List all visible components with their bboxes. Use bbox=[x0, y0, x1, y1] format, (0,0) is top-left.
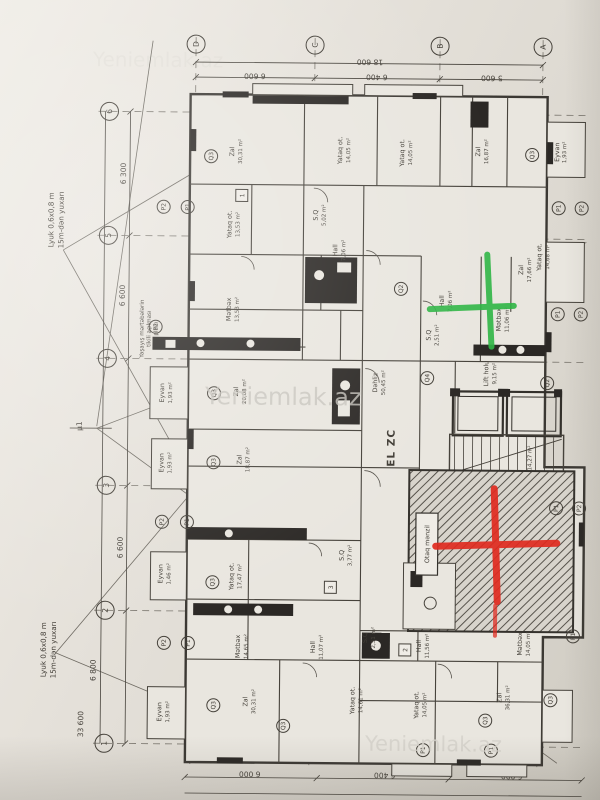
room-label: Zal bbox=[518, 265, 525, 275]
room-label: Yataq ot. bbox=[399, 139, 406, 168]
watermark-center: Yeniemlak.az bbox=[204, 382, 362, 411]
room-label: Eyvan bbox=[159, 383, 166, 402]
room-label: Zal bbox=[496, 693, 503, 703]
lyuk-line2: 15m-dən yuxarı bbox=[49, 621, 58, 678]
note-line2: tikili açılması bbox=[146, 310, 152, 347]
room-label: Yataq ot. bbox=[337, 137, 344, 166]
marker-p2: P2 bbox=[578, 311, 585, 319]
room-area: 7,06 m² bbox=[340, 240, 347, 262]
marker-p1: P1 bbox=[185, 639, 192, 647]
room-area: 13,53 m² bbox=[234, 297, 241, 322]
room-label: Eyvan bbox=[554, 143, 561, 162]
room-area: 11,56 m² bbox=[424, 634, 431, 659]
room-area: 14,65 m² bbox=[243, 634, 250, 659]
room-area: 14,05 m² bbox=[345, 138, 352, 163]
grid-number-1: 1 bbox=[99, 741, 108, 746]
room-label: Yataq ot. bbox=[536, 243, 543, 272]
lyuk-annotation-top: Lyuk 0,6x0,8 m 15m-dən yuxarı bbox=[46, 191, 65, 248]
tag-1: 1 bbox=[239, 193, 246, 197]
dim-left-1: 6 300 bbox=[119, 162, 128, 184]
room-label: Eyvan bbox=[157, 564, 164, 583]
room-label: S.Q bbox=[426, 330, 433, 341]
grid-number-6: 6 bbox=[105, 109, 114, 114]
room-area: 14,05 m² bbox=[421, 693, 428, 718]
marker-p2: P2 bbox=[576, 505, 583, 513]
section-mark-mu1: µ1 bbox=[75, 421, 84, 431]
marker-q3: Q3 bbox=[280, 721, 287, 730]
room-area: 14,68 m² bbox=[544, 245, 551, 270]
room-label: Mətbəx bbox=[226, 297, 233, 321]
note-annotation: Yaşayış mərtəbələrin tikili açılması pla… bbox=[139, 299, 160, 359]
lyuk-annotation-bottom: Lyuk 0,6x0,8 m 15m-dən yuxarı bbox=[39, 621, 58, 678]
room-label: Hall bbox=[332, 244, 339, 256]
marker-q3: Q3 bbox=[208, 152, 215, 161]
note-line3: planı bbox=[154, 321, 160, 335]
room-area: 1,93 m² bbox=[561, 141, 568, 163]
dim-top-seg1: 6 600 bbox=[244, 71, 266, 80]
otaq-menzil-label: Otaq mənzil bbox=[424, 525, 431, 563]
grid-number-5: 5 bbox=[104, 233, 113, 238]
grid-number-3: 3 bbox=[102, 483, 111, 488]
room-label: Mətbəx bbox=[517, 632, 524, 656]
room-label: Yataq ot. bbox=[413, 691, 420, 720]
room-label: Hall bbox=[310, 641, 317, 653]
marker-q3: Q3 bbox=[547, 696, 554, 705]
room-label: Eyvan bbox=[158, 453, 165, 472]
room-label: Zal bbox=[475, 146, 482, 156]
lyuk-line2: 15m-dən yuxarı bbox=[56, 191, 65, 248]
dim-left-3: 6 600 bbox=[116, 536, 125, 558]
room-area: 1,93 m² bbox=[167, 382, 174, 404]
marker-q3: Q3 bbox=[210, 458, 217, 467]
room-area: 16,87 m² bbox=[483, 139, 490, 164]
room-label: Hall bbox=[416, 640, 423, 652]
room-label: Zal bbox=[229, 146, 236, 156]
marker-q4: Q4 bbox=[424, 374, 431, 383]
lift-holu-area: 9,15 m² bbox=[491, 363, 498, 385]
dim-left-total: 33 600 bbox=[76, 711, 85, 738]
marker-q3: Q3 bbox=[482, 716, 489, 725]
room-area: 1,46 m² bbox=[165, 563, 172, 585]
marker-p2: P2 bbox=[161, 639, 168, 647]
room-label: Hall bbox=[439, 295, 446, 307]
room-area: 36,31 m² bbox=[504, 685, 511, 710]
room-label: S.Q bbox=[339, 550, 346, 561]
stairs-area-label: 14,27 m² bbox=[526, 445, 533, 470]
el-zc-label: EL ZC bbox=[385, 429, 397, 467]
dim-left-2: 6 600 bbox=[118, 284, 127, 306]
room-label: Yataq ot. bbox=[226, 211, 233, 240]
dim-left-4: 6 800 bbox=[89, 659, 98, 681]
note-line1: Yaşayış mərtəbələrin bbox=[139, 299, 146, 359]
marker-p1: P1 bbox=[570, 632, 577, 640]
tag-2: 2 bbox=[402, 648, 409, 652]
grid-letter-d: D bbox=[192, 41, 201, 47]
room-area: 18,87 m² bbox=[244, 447, 251, 472]
marker-q3: Q3 bbox=[529, 151, 536, 160]
room-area: 11,07 m² bbox=[318, 635, 325, 660]
lift-holu-label: Lift holu bbox=[483, 361, 490, 386]
room-area: 14,61 m² bbox=[357, 688, 364, 713]
marker-p1: P1 bbox=[553, 504, 560, 512]
room-label: Mətbəx bbox=[496, 308, 503, 332]
room-label: Yataq ot. bbox=[228, 563, 235, 592]
room-area: 13,53 m² bbox=[234, 212, 241, 237]
room-area: 17,66 m² bbox=[526, 257, 533, 282]
tag-3: 3 bbox=[328, 585, 335, 589]
room-area: 5,02 m² bbox=[321, 204, 328, 226]
floor-plan-photo: Yeniemlak.az 18 600 6 600 6 400 5 600 6 … bbox=[0, 0, 600, 800]
grid-number-4: 4 bbox=[103, 356, 112, 361]
room-label: Zal bbox=[242, 696, 249, 706]
marker-p2: P2 bbox=[579, 205, 586, 213]
room-area: 2,51 m² bbox=[433, 324, 440, 346]
floor-plan-drawing: Yeniemlak.az 18 600 6 600 6 400 5 600 6 … bbox=[0, 0, 600, 800]
room-label: Zal bbox=[236, 454, 243, 464]
dim-top-total: 18 600 bbox=[357, 57, 384, 66]
marker-q2: Q2 bbox=[398, 284, 405, 293]
marker-p1: P1 bbox=[556, 204, 563, 212]
grid-bubbles-top: D C B A bbox=[187, 35, 552, 56]
marker-p1: P1 bbox=[184, 518, 191, 526]
marker-q2: Q2 bbox=[544, 379, 551, 388]
grid-letter-c: C bbox=[311, 42, 320, 47]
room-area: 1,93 m² bbox=[166, 452, 173, 474]
room-label: Yataq ot. bbox=[349, 687, 356, 716]
dehliz-area: 50,45 m² bbox=[380, 370, 387, 395]
lyuk-line1: Lyuk 0,6x0,8 m bbox=[39, 622, 48, 677]
marker-q3: Q3 bbox=[210, 701, 217, 710]
room-area: 11,06 m² bbox=[504, 307, 511, 332]
marker-p2: P2 bbox=[161, 203, 168, 211]
room-area: 30,31 m² bbox=[250, 689, 257, 714]
dehliz-label: Dəhliz bbox=[372, 372, 379, 392]
room-label: S.Q bbox=[362, 632, 369, 643]
dim-top-seg3: 5 600 bbox=[481, 74, 503, 83]
marker-p2: P2 bbox=[159, 518, 166, 526]
room-area: 14,05 m² bbox=[407, 140, 414, 165]
hatched-apartment: Otaq mənzil bbox=[403, 470, 574, 632]
dim-top-seg2: 6 400 bbox=[366, 73, 388, 82]
room-area: 17,47 m² bbox=[236, 564, 243, 589]
marker-q3: Q3 bbox=[209, 578, 216, 587]
room-area: 30,31 m² bbox=[237, 139, 244, 164]
watermark-top: Yeniemlak.az bbox=[92, 47, 224, 72]
grid-number-2: 2 bbox=[101, 608, 110, 613]
dim-bottom-seg1: 6 000 bbox=[239, 769, 261, 778]
grid-letter-a: A bbox=[539, 44, 548, 50]
room-label: S.Q bbox=[313, 210, 320, 221]
marker-p1: P1 bbox=[185, 203, 192, 211]
room-area: 1,93 m² bbox=[164, 701, 171, 723]
room-label: Eyvan bbox=[156, 702, 163, 721]
lyuk-line1: Lyuk 0,6x0,8 m bbox=[46, 192, 55, 247]
room-area: 2,51 m² bbox=[370, 627, 377, 649]
room-area: 3,77 m² bbox=[347, 545, 354, 567]
room-area: 14,05 m² bbox=[525, 631, 532, 656]
watermark-bottom: Yeniemlak.az bbox=[364, 732, 502, 757]
marker-p1: P1 bbox=[555, 310, 562, 318]
room-label: Mətbəx bbox=[235, 634, 242, 658]
grid-letter-b: B bbox=[436, 44, 445, 49]
